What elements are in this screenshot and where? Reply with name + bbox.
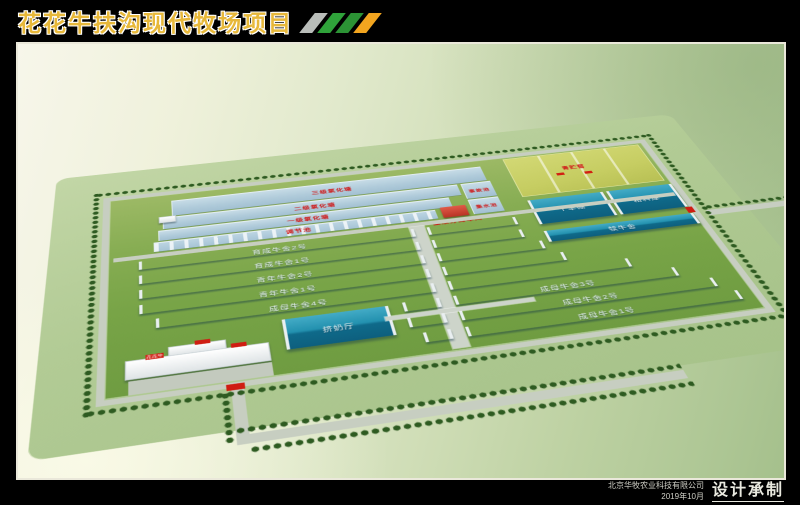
aerial-site-plane: 三级氧化塘 二级氧化塘 一级氧化塘 调节池 事故池 集水池 固液分离车间 青贮窖: [16, 102, 786, 480]
poster-canvas: 花花牛扶沟现代牧场项目: [0, 0, 800, 505]
calf-barn-label: 犊牛舍: [607, 222, 639, 232]
design-role: 设计承制: [712, 476, 784, 502]
silage-divider: [603, 149, 630, 185]
credits-block: 北京华牧农业科技有限公司 2019年10月 设计承制: [608, 476, 784, 502]
milking-parlor-label: 挤奶厅: [322, 321, 356, 334]
pond-label: 三级氧化塘: [311, 186, 353, 196]
design-company: 北京华牧农业科技有限公司: [608, 481, 704, 491]
title-bar: 花花牛扶沟现代牧场项目: [18, 4, 379, 38]
design-date: 2019年10月: [608, 492, 704, 502]
pond-label: 事故池: [468, 187, 491, 194]
render-panel: 三级氧化塘 二级氧化塘 一级氧化塘 调节池 事故池 集水池 固液分离车间 青贮窖: [16, 42, 786, 480]
page-title: 花花牛扶沟现代牧场项目: [18, 4, 293, 38]
credit-lines: 北京华牧农业科技有限公司 2019年10月: [608, 481, 704, 502]
pond-label: 集水池: [475, 202, 499, 209]
logo-stripes-icon: [307, 13, 379, 33]
